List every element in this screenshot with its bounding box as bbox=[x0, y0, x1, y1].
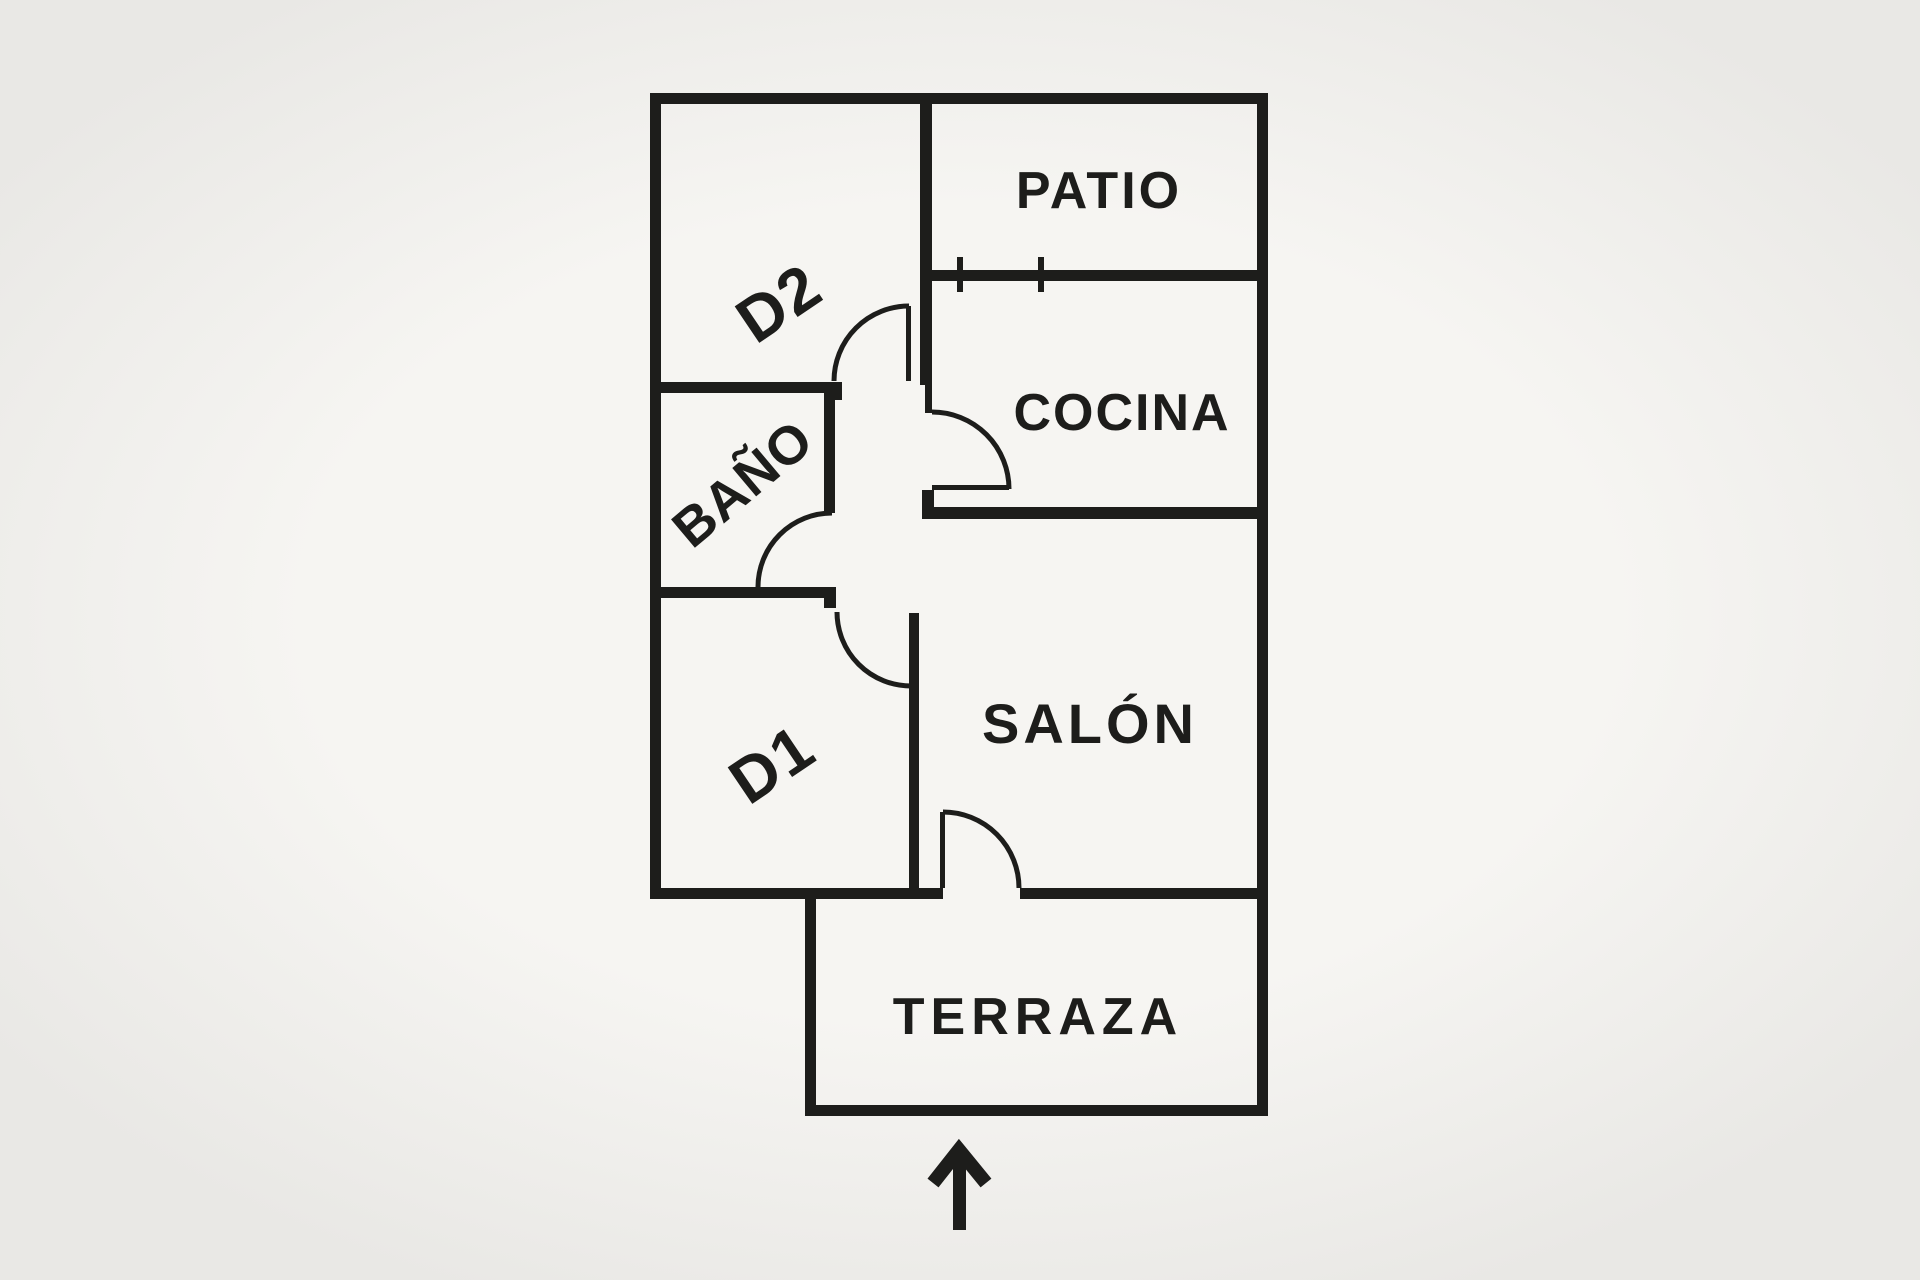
terraza-wall-bottom bbox=[805, 1105, 1268, 1116]
central-wall bbox=[920, 93, 932, 385]
up-arrow-shaft bbox=[953, 1155, 966, 1230]
d2-bottom-wall bbox=[650, 382, 842, 393]
terraza-door-arc bbox=[943, 812, 1019, 888]
patio-cocina-wall bbox=[932, 270, 1257, 281]
d2-label: D2 bbox=[723, 249, 834, 357]
bottom-wall-left-of-terraza-door bbox=[650, 888, 943, 899]
floor-plan: PATIO COCINA SALÓN TERRAZA D2 BAÑO D1 bbox=[0, 0, 1920, 1280]
bano-label: BAÑO bbox=[661, 409, 824, 560]
bano-bottom-wall bbox=[650, 587, 825, 598]
patio-label: PATIO bbox=[1016, 162, 1182, 220]
terraza-door-leaf bbox=[940, 812, 945, 888]
cocina-label: COCINA bbox=[1013, 384, 1230, 442]
d1-door-jamb bbox=[824, 587, 836, 608]
outer-wall-left bbox=[650, 93, 661, 899]
patio-window-tick-left bbox=[957, 257, 963, 292]
bano-right-wall bbox=[824, 382, 835, 513]
d1-label: D1 bbox=[716, 710, 827, 818]
up-arrow-icon bbox=[933, 1150, 986, 1230]
outer-wall-right bbox=[1257, 93, 1268, 1116]
cocina-door-leaf bbox=[932, 485, 1009, 490]
central-wall-door-stub bbox=[925, 385, 932, 413]
salon-label: SALÓN bbox=[982, 692, 1198, 755]
bano-door-arc bbox=[758, 513, 832, 587]
terraza-label: TERRAZA bbox=[893, 988, 1183, 1046]
d1-salon-divider-wall bbox=[909, 613, 919, 899]
terraza-wall-left bbox=[805, 888, 816, 1116]
d2-door-leaf bbox=[906, 306, 911, 381]
bottom-wall-right-of-terraza-door bbox=[1020, 888, 1268, 899]
d1-door-arc bbox=[837, 612, 911, 686]
cocina-door-arc bbox=[932, 412, 1009, 489]
outer-wall-top bbox=[650, 93, 1268, 104]
cocina-door-jamb bbox=[922, 490, 934, 507]
patio-window-tick-right bbox=[1038, 257, 1044, 292]
cocina-bottom-wall bbox=[922, 507, 1268, 519]
d2-door-arc bbox=[834, 306, 909, 381]
